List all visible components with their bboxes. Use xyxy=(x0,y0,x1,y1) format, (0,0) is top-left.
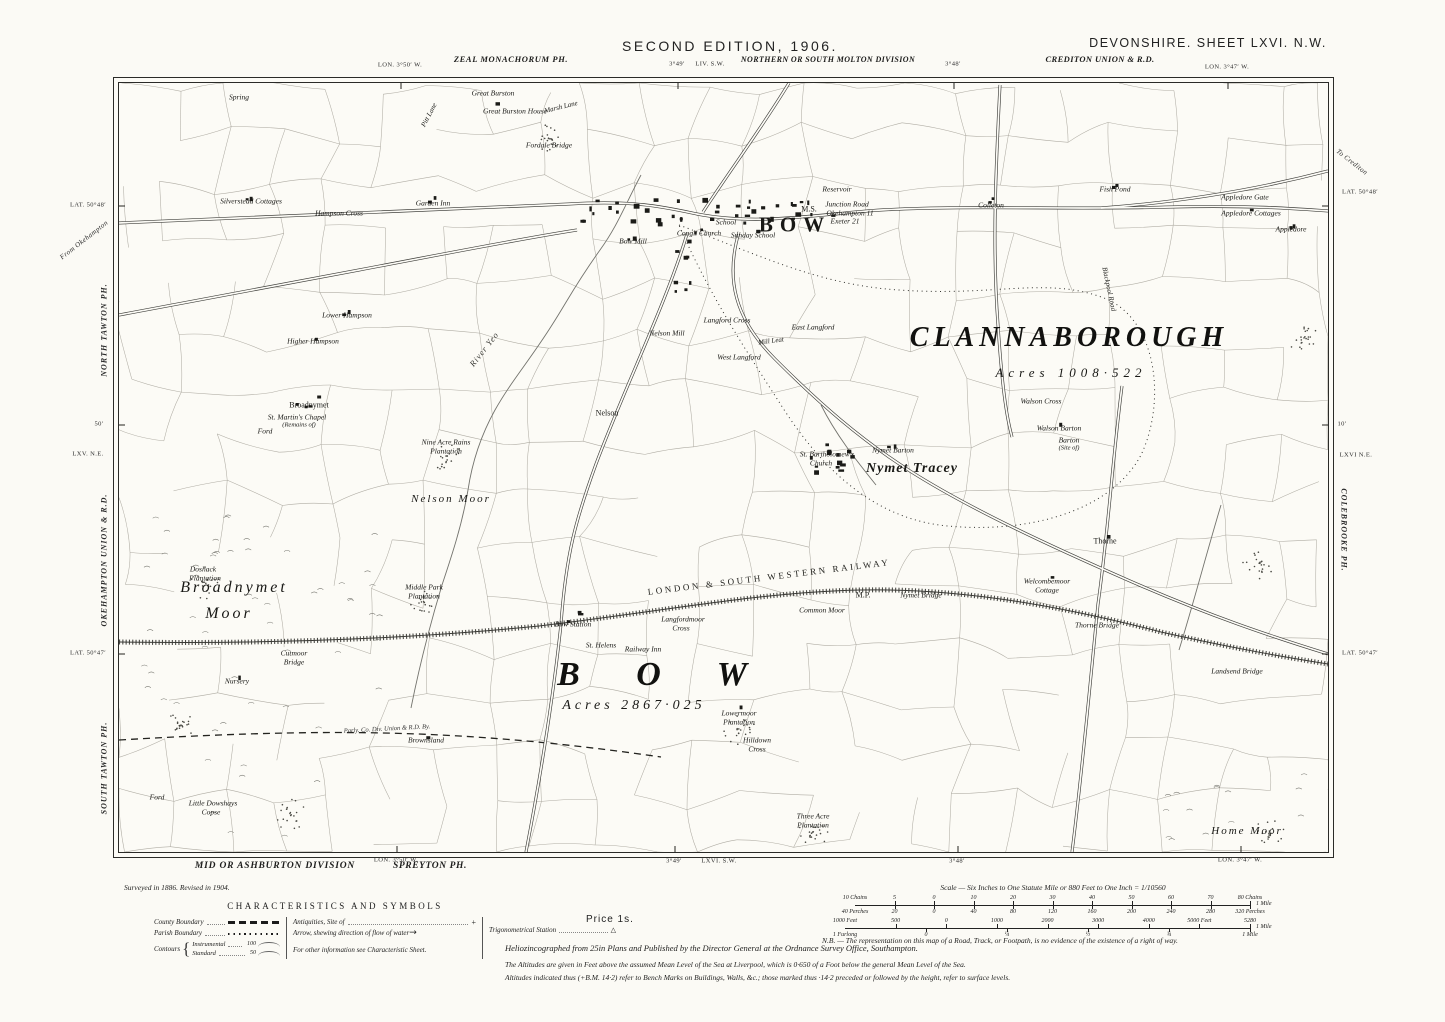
parish-boundary-symbol xyxy=(228,933,280,935)
scale-tick xyxy=(946,924,947,929)
margin-label: LXV. N.E. xyxy=(72,451,103,458)
top-union-label: CREDITON UNION & R.D. xyxy=(1000,54,1200,64)
scale-mile-label: 1 Mile xyxy=(1256,901,1272,907)
margin-label: NORTH TAWTON PH. xyxy=(100,283,109,377)
coordinate-marker: LXVI. S.W. xyxy=(701,858,736,865)
map-frame: BOWCLANNABOROUGHAcres 1008·522B O WAcres… xyxy=(113,77,1334,858)
legend-title: CHARACTERISTICS AND SYMBOLS xyxy=(180,901,490,911)
coordinate-marker: LIV. S.W. xyxy=(695,61,724,68)
parish-boundary-label: Parish Boundary xyxy=(154,928,202,939)
scale-tick xyxy=(1250,928,1251,932)
scale-tick-label: 80 xyxy=(1010,909,1016,915)
scale-tick xyxy=(926,928,927,932)
sheet-title: DEVONSHIRE. SHEET LXVI. N.W. xyxy=(1040,36,1376,50)
scale-tick-label: 320 Perches xyxy=(1235,909,1265,915)
contour-line-symbol xyxy=(258,942,280,948)
margin-label: COLEBROOKE PH. xyxy=(1340,488,1349,571)
top-division-label: NORTHERN OR SOUTH MOLTON DIVISION xyxy=(708,55,948,64)
contours-label: Contours xyxy=(154,944,180,955)
top-parish-label: ZEAL MONACHORUM PH. xyxy=(411,54,611,64)
margin-label: LAT. 50°48′ xyxy=(70,202,106,209)
leader-dots xyxy=(228,942,242,947)
scale-tick xyxy=(1149,924,1150,929)
margin-label: 10′ xyxy=(1337,421,1346,428)
scale-tick xyxy=(1053,905,1054,909)
scale-tick xyxy=(1048,924,1049,929)
leader-dots xyxy=(207,920,225,925)
trig-triangle-symbol: △ xyxy=(611,925,616,936)
margin-label: LAT. 50°47′ xyxy=(1342,650,1378,657)
scale-tick xyxy=(934,905,935,909)
county-boundary-symbol xyxy=(228,921,280,924)
characteristic-sheet-note: For other information see Characteristic… xyxy=(293,946,476,954)
coordinate-marker: 3°48′ xyxy=(949,858,965,865)
coordinate-marker: LON. 3°47′ W. xyxy=(1205,64,1249,71)
scale-tick xyxy=(895,905,896,909)
coordinate-marker: 3°49′ xyxy=(669,61,685,68)
scale-tick xyxy=(1098,924,1099,929)
scale-tick-label: 280 xyxy=(1206,909,1215,915)
scale-tick xyxy=(1199,924,1200,929)
scale-tick xyxy=(1171,905,1172,909)
scale-tick xyxy=(974,905,975,909)
margin-label: SOUTH TAWTON PH. xyxy=(100,722,109,815)
scale-tick-label: 0 xyxy=(933,909,936,915)
scale-tick xyxy=(1132,905,1133,909)
contour-instrumental-label: Instrumental xyxy=(192,940,225,949)
flow-arrow-symbol: → xyxy=(409,928,417,939)
scale-tick xyxy=(997,924,998,929)
bottom-division-label: MID OR ASHBURTON DIVISION xyxy=(190,861,360,871)
scale-tick-label: 20 xyxy=(892,909,898,915)
margin-label: LAT. 50°48′ xyxy=(1342,189,1378,196)
scale-tick-label: 40 xyxy=(971,909,977,915)
brace-glyph: { xyxy=(182,939,190,959)
benchmark-note: Altitudes indicated thus (+B.M. 14·2) re… xyxy=(505,973,1010,982)
legend-column-boundaries: County Boundary Parish Boundary Contours… xyxy=(148,917,286,959)
scale-tick-label: 200 xyxy=(1127,909,1136,915)
scale-tick xyxy=(1250,905,1251,909)
contour-line-symbol xyxy=(258,951,280,957)
leader-dots xyxy=(205,931,225,936)
antiquities-cross-symbol: + xyxy=(471,917,476,928)
rights-of-way-note: N.B. — The representation on this map of… xyxy=(822,936,1438,945)
scale-tick xyxy=(1007,928,1008,932)
edition-title: SECOND EDITION, 1906. xyxy=(560,38,900,54)
scale-tick-label: 10 Chains xyxy=(843,895,868,901)
map-canvas xyxy=(119,83,1328,852)
price-label: Price 1s. xyxy=(586,914,634,925)
survey-revision-note: Surveyed in 1886. Revised in 1904. xyxy=(124,883,230,892)
scale-tick xyxy=(1092,905,1093,909)
scale-tick xyxy=(1169,928,1170,932)
scale-tick-label: 40 Perches xyxy=(842,909,869,915)
scale-tick xyxy=(1211,905,1212,909)
scale-tick xyxy=(896,924,897,929)
scale-tick-label: 1000 Feet xyxy=(833,918,857,924)
flow-arrow-label: Arrow, shewing direction of flow of wate… xyxy=(293,928,409,939)
antiquities-label: Antiquities, Site of xyxy=(293,917,345,928)
scale-tick-label: 160 xyxy=(1088,909,1097,915)
margin-label: 50′ xyxy=(94,421,103,428)
scale-bar-chains: 10 Chains501020304050607080 Chains40 Per… xyxy=(855,895,1250,919)
scale-tick-label: 120 xyxy=(1048,909,1057,915)
scale-caption: Scale — Six Inches to One Statute Mile o… xyxy=(845,883,1261,892)
map-inner-border: BOWCLANNABOROUGHAcres 1008·522B O WAcres… xyxy=(118,82,1329,853)
coordinate-marker: 3°49′ xyxy=(666,858,682,865)
county-boundary-label: County Boundary xyxy=(154,917,204,928)
contour-instrumental-value: 100 xyxy=(247,940,256,949)
margin-label: LXVI N.E. xyxy=(1340,452,1373,459)
os-map-sheet: SECOND EDITION, 1906. DEVONSHIRE. SHEET … xyxy=(0,0,1445,1022)
contour-standard-label: Standard xyxy=(192,949,216,958)
margin-label: LAT. 50°47′ xyxy=(70,650,106,657)
scale-tick xyxy=(1013,905,1014,909)
margin-label: From Okehampton xyxy=(58,219,109,262)
margin-label: To Crediton xyxy=(1335,147,1370,176)
leader-dots xyxy=(559,928,608,933)
scale-tick-label: 240 xyxy=(1167,909,1176,915)
leader-dots xyxy=(219,951,245,956)
margin-label: OKEHAMPTON UNION & R.D. xyxy=(100,494,109,627)
leader-dots xyxy=(348,920,469,925)
bottom-parish-label: SPREYTON PH. xyxy=(370,861,490,871)
trig-station-label: Trigonometrical Station xyxy=(489,925,556,936)
legend-column-symbols: Antiquities, Site of + Arrow, shewing di… xyxy=(286,917,482,959)
coordinate-marker: 3°48′ xyxy=(945,61,961,68)
coordinate-marker: LON. 3°50′ W. xyxy=(378,62,422,69)
contour-standard-value: 50 xyxy=(250,949,256,958)
scale-tick xyxy=(1088,928,1089,932)
scale-mile-label: 1 Mile xyxy=(1256,924,1272,930)
altitude-datum-note: The Altitudes are given in Feet above th… xyxy=(505,960,966,969)
